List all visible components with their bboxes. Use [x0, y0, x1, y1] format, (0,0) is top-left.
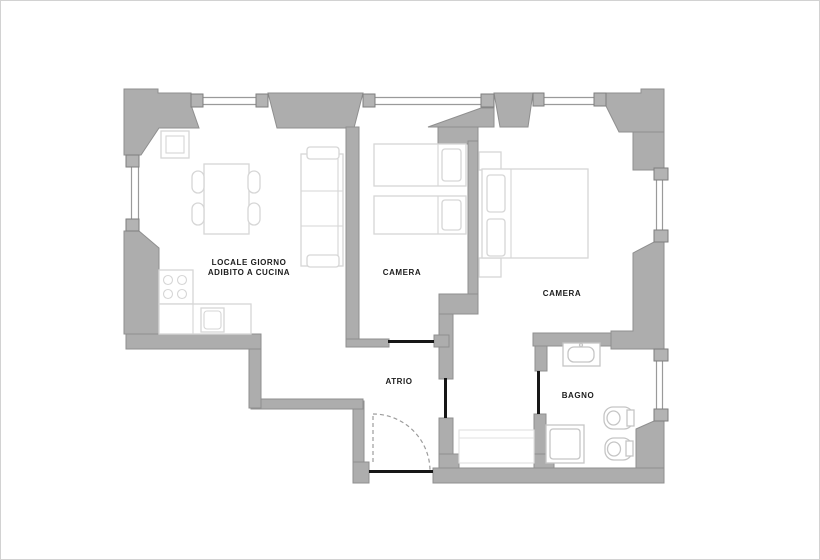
stove	[159, 270, 193, 304]
pillow	[442, 200, 461, 230]
outer-wall-top-a	[268, 93, 363, 128]
toilet-cistern	[627, 410, 634, 426]
nightstand	[479, 258, 501, 277]
kitchen-corner-cabinet	[161, 131, 189, 158]
camera1-left-wall-foot	[346, 339, 389, 347]
window-jamb	[256, 94, 268, 107]
camera-divider-step	[439, 294, 478, 314]
room-label-atrio: ATRIO	[385, 377, 412, 386]
outer-wall-right-mid	[611, 242, 664, 349]
pillow	[487, 219, 505, 256]
kitchen-bottom-wall	[126, 334, 261, 349]
window-jamb	[654, 230, 668, 242]
window-jamb	[654, 349, 668, 361]
camera1-left-wall	[346, 127, 359, 339]
chair	[192, 171, 204, 193]
room-label-camera-1: CAMERA	[383, 268, 421, 277]
bidet-bowl	[608, 442, 621, 456]
sink-tap	[580, 344, 583, 347]
room-label-living-kitchen: ADIBITO A CUCINA	[208, 268, 290, 277]
camera-divider-wall	[468, 141, 478, 294]
bagno-door-opening	[537, 371, 540, 414]
window-jamb	[363, 94, 375, 107]
wardrobe	[459, 430, 534, 463]
chair	[248, 171, 260, 193]
outer-wall-bottom	[433, 468, 664, 483]
window-jamb	[533, 93, 544, 106]
camera1-door-block	[434, 335, 449, 347]
dining-table	[204, 164, 249, 234]
entry-door-swing	[373, 414, 430, 471]
window-jamb	[126, 219, 139, 231]
window-jamb	[481, 94, 494, 107]
nightstand	[479, 152, 501, 170]
outer-wall-top-reveal	[428, 108, 494, 127]
room-label-living-kitchen: LOCALE GIORNO	[212, 258, 287, 267]
sofa-armrest	[307, 255, 339, 267]
atrio-bottom-step-wall	[251, 399, 363, 409]
room-label-bagno: BAGNO	[562, 391, 595, 400]
entry-wall-foot	[353, 462, 369, 483]
outer-wall-top-b	[494, 93, 533, 127]
pillow	[487, 175, 505, 212]
window-jamb	[594, 93, 606, 106]
outer-wall-left-lower	[124, 231, 159, 334]
pillow	[442, 149, 461, 181]
entry-door-leaf	[369, 470, 433, 473]
window-jamb	[191, 94, 203, 107]
alcove-wall-foot	[439, 454, 459, 468]
floor-plan: LOCALE GIORNOADIBITO A CUCINACAMERACAMER…	[0, 0, 820, 560]
chair	[192, 203, 204, 225]
sofa	[301, 154, 343, 266]
outer-wall-right-upper	[633, 132, 664, 170]
chair	[248, 203, 260, 225]
window-jamb	[126, 155, 139, 167]
bidet-tap	[626, 441, 633, 456]
shower-tray-inner	[550, 429, 580, 459]
bathroom-sink-basin	[568, 347, 594, 362]
atrio-left-step-wall	[249, 344, 261, 408]
toilet-bowl	[607, 411, 620, 425]
room-label-camera-2: CAMERA	[543, 289, 581, 298]
outer-wall-top-right-corner	[606, 89, 664, 132]
camera1-door-opening	[388, 340, 434, 343]
alcove-door-opening	[444, 378, 447, 418]
sofa-armrest	[307, 147, 339, 159]
floor-plan-svg: LOCALE GIORNOADIBITO A CUCINACAMERACAMER…	[1, 1, 820, 560]
bagno-left-wall-upper	[535, 346, 547, 371]
window-jamb	[654, 409, 668, 421]
window-jamb	[654, 168, 668, 180]
